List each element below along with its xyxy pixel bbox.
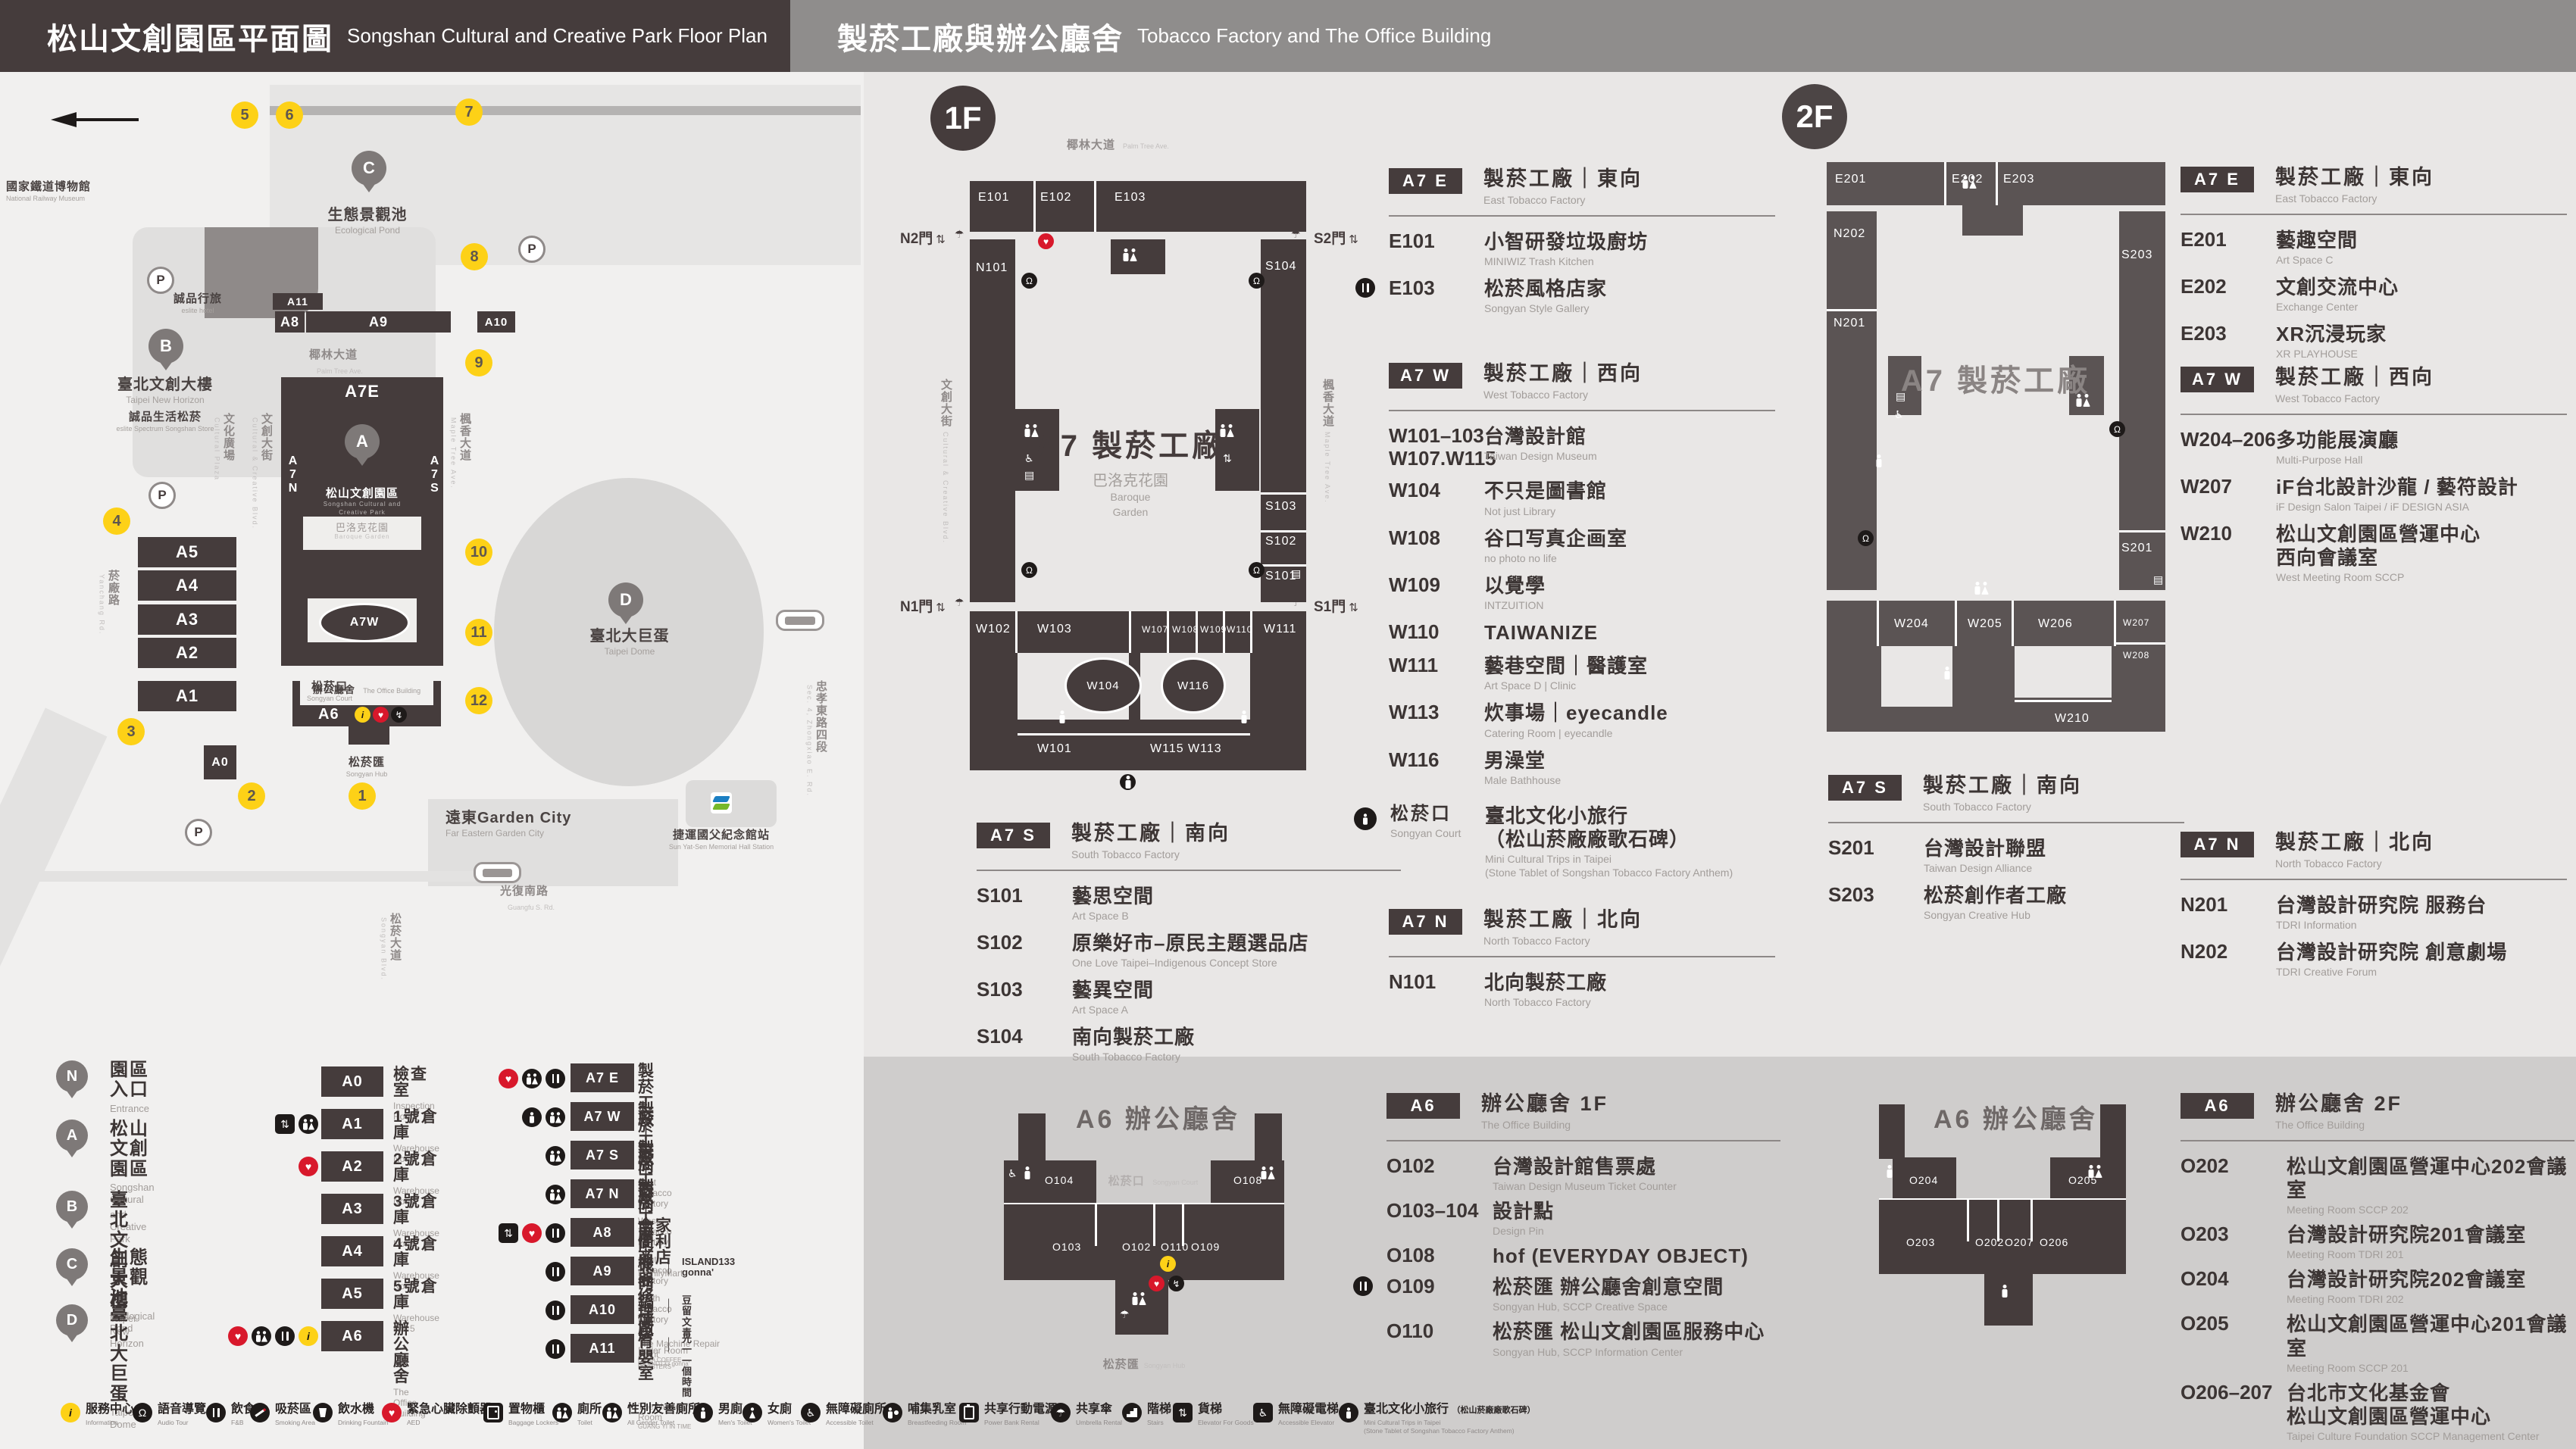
- amenity-item: Ω 語音導覽 Audio Tour: [133, 1403, 206, 1427]
- compass-icon: [51, 112, 142, 127]
- smoking-icon: [250, 1403, 270, 1422]
- palm-tree-ave-label: 椰林大道Palm Tree Ave.: [1067, 138, 1169, 153]
- legend-pin-icon: A: [56, 1120, 88, 1151]
- map-label: 松菸大道 Songyan Blvd.: [379, 913, 402, 981]
- room-row: O202 松山文創園區營運中心202會議室Meeting Room SCCP 2…: [2181, 1155, 2574, 1216]
- stairs-icon: [1122, 1403, 1142, 1422]
- info-icon: i: [355, 707, 370, 723]
- section-a7s-2f: A7 S 製菸工廠｜南向South Tobacco Factory S201 台…: [1828, 775, 2184, 931]
- baroque-en2: Garden: [1062, 506, 1199, 518]
- baroque-en1: Baroque: [1062, 491, 1199, 503]
- section-badge: A6: [2181, 1093, 2254, 1119]
- entrance-number: 6: [276, 101, 303, 129]
- room-row: O206–207 台北市文化基金會松山文創園區營運中心Taipei Cultur…: [2181, 1382, 2574, 1442]
- room-row: S104 南向製菸工廠South Tobacco Factory: [977, 1026, 1401, 1063]
- room-label: E103: [1114, 191, 1146, 205]
- room-label: W109: [1200, 624, 1227, 635]
- room-row: W207 iF台北設計沙龍 / 藝符設計iF Design Salon Taip…: [2181, 476, 2567, 513]
- room-label: N201: [1834, 317, 1865, 330]
- room-label: O206: [2040, 1236, 2068, 1248]
- room-label: O204: [1909, 1174, 1938, 1186]
- room-label: W207: [2123, 617, 2149, 628]
- section-badge: A7 W: [2181, 367, 2254, 392]
- location-pin: C: [352, 151, 386, 186]
- map-pictogram: ▤: [1291, 568, 1301, 579]
- park-building-bar: A3: [138, 604, 236, 635]
- baroque-garden-zh: 巴洛克花園: [303, 520, 421, 534]
- road-band: [270, 106, 861, 115]
- parking-icon: P: [518, 236, 546, 263]
- map-label: 楓香大道 Maple Tree Ave.: [449, 413, 471, 489]
- goods-lift-icon: ⇅: [275, 1114, 295, 1134]
- page-title-zh: 松山文創園區平面圖: [47, 14, 333, 58]
- map-pictogram: [1261, 1166, 1274, 1179]
- a7-center-label-1f: A7 製菸工廠: [1024, 421, 1236, 465]
- amenity-item: 階梯 Stairs: [1122, 1403, 1171, 1427]
- map-pictogram: [2088, 1165, 2102, 1178]
- access-toilet-icon: ♿: [801, 1403, 821, 1422]
- park-name-zh: 松山文創園區: [281, 485, 443, 501]
- map-pictogram: ♿: [1894, 409, 1904, 420]
- room-label: S104: [1265, 260, 1296, 273]
- map-pictogram: ☂: [955, 229, 964, 239]
- room-row: N202 台灣設計研究院 創意劇場TDRI Creative Forum: [2181, 941, 2567, 978]
- map-pictogram: [1024, 424, 1038, 437]
- gate-label: S1門⇅: [1314, 595, 1358, 616]
- room-row: W101–103W107.W115 台灣設計館Taiwan Design Mus…: [1389, 425, 1775, 470]
- men-icon: [693, 1403, 713, 1422]
- map-pictogram: [1876, 454, 1882, 467]
- room-row: W113 炊事場｜eyecandleCatering Room | eyecan…: [1389, 701, 1775, 739]
- aed-icon: ♥: [499, 1069, 518, 1088]
- room-label: W210: [2055, 712, 2090, 726]
- water-icon: [313, 1403, 333, 1422]
- map-label: 遠東Garden City Far Eastern Garden City: [445, 809, 571, 839]
- room-label: O202: [1975, 1236, 2004, 1248]
- legend-pin-icon: D: [56, 1304, 88, 1336]
- room-label: W101: [1037, 742, 1072, 756]
- map-pictogram: ☂: [1120, 1309, 1130, 1319]
- a6-1f-map-title: A6 辦公廳舍: [1076, 1098, 1240, 1135]
- section-a7n-2f: A7 N 製菸工廠｜北向North Tobacco Factory N201 台…: [2181, 832, 2567, 988]
- amenity-item: 置物櫃 Baggage Lockers: [483, 1403, 558, 1427]
- map-pictogram: [1962, 176, 1976, 189]
- room-row: E202 文創交流中心Exchange Center: [2181, 276, 2567, 313]
- map-label: 捷運國父紀念館站 Sun Yat-Sen Memorial Hall Stati…: [653, 829, 789, 851]
- map-pictogram: [2002, 1285, 2008, 1298]
- map-label: 文創大街 Cultural & Creative Blvd.: [250, 413, 273, 529]
- park-building-bar: A10: [477, 311, 515, 333]
- room-row: W204–206 多功能展演廳Multi-Purpose Hall: [2181, 429, 2567, 466]
- food-icon: [546, 1069, 565, 1088]
- section-badge: A7 S: [1828, 775, 1902, 801]
- parking-icon: P: [147, 267, 174, 294]
- goods-lift-icon: ⇅: [1173, 1403, 1193, 1422]
- map-pictogram: [1974, 582, 1988, 595]
- room-row: O110 松菸匯 松山文創園區服務中心Songyan Hub, SCCP Inf…: [1386, 1320, 1780, 1357]
- toilet-icon: [546, 1185, 565, 1204]
- room-label: S103: [1265, 500, 1296, 514]
- page-title-en: Songshan Cultural and Creative Park Floo…: [347, 24, 767, 48]
- bus-stop-icon: [776, 610, 824, 631]
- walk-icon: [522, 1107, 542, 1127]
- a6-map-label: A6: [318, 706, 339, 723]
- section-badge: A6: [1386, 1093, 1460, 1119]
- gate-label: N1門⇅: [900, 595, 946, 616]
- entrance-number: 5: [231, 101, 258, 129]
- map-pictogram: ↯: [1168, 1276, 1184, 1291]
- room-label: W111: [1264, 623, 1296, 636]
- map-pictogram: ☂: [1291, 229, 1301, 239]
- map-pictogram: Ω: [1249, 562, 1265, 578]
- entrance-number: 7: [455, 98, 483, 126]
- room-row: O205 松山文創園區營運中心201會議室Meeting Room SCCP 2…: [2181, 1313, 2574, 1373]
- room-label: S203: [2121, 248, 2152, 262]
- aed-icon: ♥: [522, 1223, 542, 1243]
- a7w-map-label: A7W: [319, 603, 410, 642]
- map-pictogram: [1132, 1292, 1146, 1305]
- room-label: E203: [2003, 173, 2034, 186]
- room-label: E201: [1835, 173, 1866, 186]
- room-label: W107: [1142, 624, 1168, 635]
- amenity-item: 飲食 F&B: [206, 1403, 255, 1427]
- room-label: S201: [2121, 542, 2152, 555]
- floor-2f-badge: 2F: [1782, 84, 1847, 149]
- location-pin: D: [608, 582, 643, 617]
- room-label: W110: [1227, 624, 1252, 635]
- food-icon: [546, 1339, 565, 1359]
- map-pictogram: ☂: [1291, 597, 1301, 607]
- a7-center-label-2f: A7 製菸工廠: [1890, 356, 2102, 400]
- food-icon: [546, 1223, 565, 1243]
- section-a6-1f: A6 辦公廳舍 1FThe Office Building O102 台灣設計館…: [1386, 1093, 1780, 1366]
- room-row: E201 藝趣空間Art Space C: [2181, 229, 2567, 266]
- guangfu-road: [0, 871, 500, 882]
- room-label: E101: [978, 191, 1009, 205]
- gate-label: N2門⇅: [900, 227, 946, 248]
- baroque-garden-label: 巴洛克花園: [1062, 468, 1199, 490]
- map-pictogram: ☂: [955, 597, 964, 607]
- room-label: W102: [976, 623, 1011, 636]
- map-pictogram: [1220, 424, 1233, 437]
- park-name-en2: Creative Park: [281, 509, 443, 516]
- food-icon: [1355, 278, 1375, 298]
- room-row: W110 TAIWANIZE: [1389, 621, 1775, 645]
- map-pictogram: [1944, 667, 1950, 679]
- room-label: N202: [1834, 227, 1865, 241]
- a6-2f-map-title: A6 辦公廳舍: [1934, 1098, 2098, 1135]
- audio-icon: Ω: [133, 1403, 152, 1422]
- room-label: W204: [1894, 617, 1929, 631]
- section-badge: A7 E: [2181, 167, 2254, 192]
- toilet-icon: [252, 1326, 271, 1346]
- park-building-bar: A11: [273, 293, 323, 310]
- map-pictogram: ♿: [1008, 1168, 1018, 1179]
- room-row: S102 原樂好市–原民主題選品店One Love Taipei–Indigen…: [977, 932, 1401, 969]
- map-label: 文化廣場 Cultural Plaza: [212, 413, 235, 481]
- floor-1f-badge: 1F: [930, 86, 996, 151]
- section-badge: A7 S: [977, 823, 1050, 848]
- baroque-garden-en: Baroque Garden: [303, 533, 421, 540]
- map-pictogram: [1241, 710, 1247, 723]
- section-a6-2f: A6 辦公廳舍 2FThe Office Building O202 松山文創園…: [2181, 1093, 2574, 1449]
- section-title-zh: 製菸工廠與辦公廳舍: [837, 14, 1124, 58]
- room-row: W116 男澡堂Male Bathhouse: [1389, 749, 1775, 786]
- park-name-en1: Songshan Cultural and: [281, 501, 443, 507]
- nursing-icon: [883, 1403, 902, 1422]
- parking-icon: P: [148, 482, 176, 509]
- park-building-bar: A0: [204, 745, 236, 779]
- umbrella-icon: ☂: [1051, 1403, 1071, 1422]
- park-building-bar: A5: [138, 537, 236, 567]
- toilet-icon: [546, 1107, 565, 1127]
- songyan-hub-map-label: 松菸匯Songyan Hub: [1083, 1357, 1205, 1372]
- a7e-map-label: A7E: [281, 382, 443, 401]
- food-icon: [206, 1403, 226, 1422]
- map-pictogram: [1887, 1165, 1893, 1178]
- map-pictogram: [1123, 248, 1136, 261]
- room-label: W206: [2038, 617, 2073, 631]
- map-label: 松菸匯 Songyan Hub: [292, 756, 441, 779]
- map-label: 松菸口 Songyan Court: [295, 680, 364, 703]
- map-pictogram: [2076, 394, 2090, 407]
- room-row: N201 台灣設計研究院 服務台TDRI Information: [2181, 894, 2567, 931]
- metro-logo: [711, 792, 732, 814]
- amenity-item: ♿ 無障礙電梯 Accessible Elevator: [1253, 1403, 1339, 1427]
- room-label: O108: [1233, 1174, 1262, 1186]
- map-label: 誠品行旅 eslite hotel: [156, 292, 239, 315]
- room-row: W108 谷口写真企画室no photo no life: [1389, 527, 1775, 564]
- room-row: S201 台灣設計聯盟Taiwan Design Alliance: [1828, 837, 2184, 874]
- map-pictogram: Ω: [1858, 530, 1874, 546]
- maple-tree-ave-label: 楓香大道Maple Tree Ave.: [1320, 379, 1335, 504]
- a6-stub: [349, 726, 389, 745]
- toilet-ag-icon: [602, 1403, 622, 1422]
- section-badge: A7 N: [1389, 909, 1462, 935]
- location-pin: B: [148, 329, 183, 364]
- map-pictogram: Ω: [1021, 273, 1037, 289]
- cultural-creative-blvd-label: 文創大街Cultural & Creative Blvd.: [938, 379, 953, 544]
- header-left: 松山文創園區平面圖 Songshan Cultural and Creative…: [0, 0, 790, 72]
- toilet-icon: [546, 1146, 565, 1166]
- legend-pin-icon: N: [56, 1060, 88, 1092]
- women-icon: [742, 1403, 762, 1422]
- walk-icon: [1339, 1403, 1358, 1422]
- entrance-number: 3: [117, 718, 145, 745]
- room-label: E102: [1040, 191, 1071, 205]
- amenity-item: 共享行動電源 Power Bank Rental: [959, 1403, 1057, 1427]
- room-row: E103 松菸風格店家Songyan Style Gallery: [1389, 277, 1775, 314]
- room-label: W115: [1150, 742, 1184, 756]
- section-badge: A7 E: [1389, 168, 1462, 194]
- entrance-number: 11: [465, 619, 492, 646]
- goods-lift-icon: ⇅: [499, 1223, 518, 1243]
- room-row: O204 台灣設計研究院202會議室Meeting Room TDRI 202: [2181, 1268, 2574, 1305]
- room-label: O203: [1906, 1236, 1935, 1248]
- room-label: S102: [1265, 535, 1296, 548]
- park-building-bar: A9: [306, 311, 451, 333]
- map-label: 椰林大道 Palm Tree Ave.: [309, 348, 363, 378]
- park-building-bar: A1: [138, 681, 236, 711]
- room-label: O110: [1161, 1241, 1189, 1253]
- amenity-item: 廁所 Toilet: [552, 1403, 602, 1427]
- section-a7w-1f: A7 W 製菸工廠｜西向West Tobacco Factory W101–10…: [1389, 363, 1775, 796]
- access-lift-icon: ♿: [1253, 1403, 1273, 1422]
- map-pictogram: Ω: [2109, 421, 2125, 437]
- room-label: N101: [976, 261, 1008, 275]
- map-label: 忠孝東路四段 Sec. 4, Zhongxiao E. Rd.: [805, 680, 827, 797]
- room-row: W111 藝巷空間｜醫護室Art Space D | Clinic: [1389, 654, 1775, 692]
- aed-icon: ♥: [228, 1326, 248, 1346]
- map-pictogram: Ω: [1249, 273, 1265, 289]
- park-building-bar: A8: [275, 311, 305, 333]
- map-label: 光復南路 Guangfu S. Rd.: [500, 885, 555, 914]
- entrance-number: 12: [465, 687, 492, 714]
- section-badge: A7 N: [2181, 832, 2254, 857]
- room-row: O102 台灣設計館售票處Taiwan Design Museum Ticket…: [1386, 1155, 1780, 1192]
- park-building-bar: A4: [138, 570, 236, 601]
- room-w116: W116: [1161, 657, 1226, 714]
- info-icon: i: [299, 1326, 318, 1346]
- entrance-number: 1: [349, 782, 376, 810]
- gate-label: S2門⇅: [1314, 227, 1358, 248]
- room-row: S203 松菸創作者工廠Songyan Creative Hub: [1828, 884, 2184, 921]
- legend-pin-icon: B: [56, 1191, 88, 1223]
- map-label: 臺北文創大樓 Taipei New Horizon: [97, 376, 233, 406]
- room-label: W113: [1188, 742, 1222, 756]
- aed-icon: ♥: [299, 1157, 318, 1176]
- food-icon: [546, 1262, 565, 1282]
- room-row: S101 藝思空間Art Space B: [977, 885, 1401, 922]
- room-label: O102: [1122, 1241, 1151, 1253]
- room-row: O203 台灣設計研究院201會議室Meeting Room TDRI 201: [2181, 1223, 2574, 1260]
- tobacco-factory-1f: [970, 181, 1306, 232]
- section-a7s-1f: A7 S 製菸工廠｜南向South Tobacco Factory S101 藝…: [977, 823, 1401, 1073]
- section-a7e-2f: A7 E 製菸工廠｜東向East Tobacco Factory E201 藝趣…: [2181, 167, 2567, 370]
- room-row: N101 北向製菸工廠North Tobacco Factory: [1389, 971, 1775, 1008]
- room-row: S103 藝異空間Art Space A: [977, 979, 1401, 1016]
- bus-stop-icon: [474, 862, 521, 883]
- room-row: W104 不只是圖書館Not just Library: [1389, 479, 1775, 517]
- amenity-item: 性別友善廁所 All Gender Toilet: [602, 1403, 700, 1427]
- food-icon: [546, 1301, 565, 1320]
- park-building-bar: A2: [138, 638, 236, 668]
- info-icon: i: [61, 1403, 80, 1422]
- room-w104: W104: [1064, 657, 1142, 714]
- room-label: O103: [1052, 1241, 1081, 1253]
- map-pictogram: ▤: [2153, 574, 2163, 585]
- room-row: E203 XR沉浸玩家XR PLAYHOUSE: [2181, 323, 2567, 360]
- aed-icon: ♥: [373, 707, 389, 723]
- map-pictogram: ⇅: [1223, 453, 1232, 464]
- aed-icon: ♥: [382, 1403, 402, 1422]
- walk-icon: [1354, 807, 1377, 830]
- map-pictogram: Ω: [1021, 562, 1037, 578]
- room-label: W103: [1037, 623, 1072, 636]
- map-pictogram: [1024, 1166, 1030, 1179]
- map-pictogram: ♥: [1038, 233, 1054, 249]
- entrance-number: 4: [103, 507, 130, 535]
- entrance-number: 8: [461, 243, 488, 270]
- toilet-icon: [299, 1114, 318, 1134]
- songyan-court-map-label: 松菸口 Songyan Court: [1096, 1174, 1210, 1189]
- locker-icon: [483, 1403, 503, 1422]
- room-label: W205: [1968, 617, 2002, 631]
- food-icon: [1353, 1276, 1373, 1296]
- parking-icon: P: [185, 819, 212, 846]
- section-a7n-1f: A7 N 製菸工廠｜北向North Tobacco Factory N101 北…: [1389, 909, 1775, 1018]
- section-badge: A7 W: [1389, 363, 1462, 389]
- section-title-en: Tobacco Factory and The Office Building: [1137, 24, 1491, 48]
- room-label: O104: [1045, 1174, 1074, 1186]
- section-a7w-2f: A7 W 製菸工廠｜西向West Tobacco Factory W204–20…: [2181, 367, 2567, 593]
- amenity-item: ♿ 無障礙廁所 Accessible Toilet: [801, 1403, 886, 1427]
- map-pictogram: ♿: [1024, 453, 1034, 464]
- location-pin: A: [345, 424, 380, 459]
- map-pictogram: [1059, 710, 1065, 723]
- map-pictogram: ♥: [1149, 1276, 1165, 1291]
- amenity-item: 吸菸區 Smoking Area: [250, 1403, 315, 1427]
- amenity-item: ⇅ 貨梯 Elevator For Goods: [1173, 1403, 1254, 1427]
- amenity-item: 臺北文化小旅行 （松山菸廠廠歌石碑） Mini Cultural Trips i…: [1339, 1403, 1535, 1435]
- header-right: 製菸工廠與辦公廳舍 Tobacco Factory and The Office…: [790, 0, 2576, 72]
- amenity-item: 飲水機 Drinking Fountain: [313, 1403, 389, 1427]
- entrance-number: 10: [465, 539, 492, 566]
- room-row: W109 以覺學INTZUITION: [1389, 574, 1775, 611]
- entrance-number: 9: [465, 349, 492, 376]
- map-label: 菸廠路 Yanchang Rd.: [97, 570, 120, 635]
- powerbank-icon: [959, 1403, 979, 1422]
- entrance-number: 2: [238, 782, 265, 810]
- amenity-item: 哺集乳室 Breastfeeding Room: [883, 1403, 967, 1427]
- room-label: O207: [2005, 1236, 2034, 1248]
- diagonal-road: [0, 707, 107, 1079]
- section-a7e-1f: A7 E 製菸工廠｜東向East Tobacco Factory E101 小智…: [1389, 168, 1775, 324]
- map-label: 生態景觀池 Ecological Pond: [299, 206, 436, 236]
- room-row: E101 小智研發垃圾廚坊MINIWIZ Trash Kitchen: [1389, 230, 1775, 267]
- amenity-item: ♥ 緊急心臟除顫器 AED: [382, 1403, 492, 1427]
- map-pictogram: ▤: [1024, 470, 1034, 480]
- room-row: O103–104 設計點Design Pin: [1386, 1200, 1780, 1237]
- floor-plan-poster: 松山文創園區平面圖 Songshan Cultural and Creative…: [0, 0, 2576, 1449]
- amenity-item: i 服務中心 Information: [61, 1403, 134, 1427]
- toilet-icon: [522, 1069, 542, 1088]
- legend-pin-icon: C: [56, 1248, 88, 1280]
- room-label: W208: [2123, 650, 2149, 660]
- room-label: W108: [1172, 624, 1199, 635]
- map-pictogram: [1120, 774, 1136, 790]
- room-label: O109: [1191, 1241, 1220, 1253]
- room-row: O108 hof (EVERYDAY OBJECT): [1386, 1244, 1780, 1268]
- map-pictogram: ▤: [1896, 391, 1905, 401]
- food-icon: [275, 1326, 295, 1346]
- toilet-icon: [552, 1403, 572, 1422]
- room-row: W210 松山文創園區營運中心西向會議室West Meeting Room SC…: [2181, 523, 2567, 583]
- room-row: O109 松菸匯 辦公廳舍創意空間Songyan Hub, SCCP Creat…: [1386, 1276, 1780, 1313]
- amenity-item: ☂ 共享傘 Umbrella Rental: [1051, 1403, 1122, 1427]
- map-pictogram: i: [1160, 1256, 1176, 1272]
- map-label: 國家鐵道博物館 National Railway Museum: [6, 180, 91, 203]
- powerbank-icon: ↯: [391, 707, 407, 723]
